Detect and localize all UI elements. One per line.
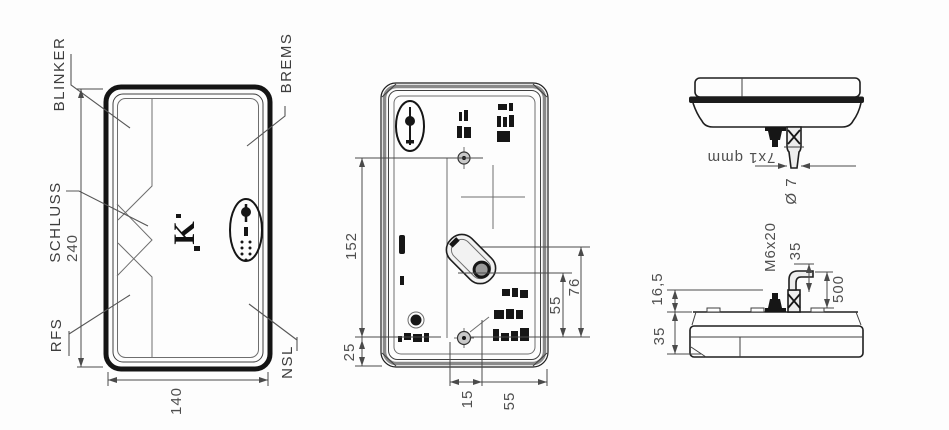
- cable-gland: [441, 229, 502, 290]
- blinker-label: BLINKER: [51, 37, 68, 112]
- top-cable: [784, 127, 804, 168]
- rear-connector-icon: [396, 101, 424, 151]
- rear-mark-dot: [400, 276, 404, 285]
- brand-logo-letter: K: [168, 221, 201, 245]
- technical-drawing-canvas: K: [0, 0, 949, 430]
- rear-corner-ticks: [382, 84, 547, 366]
- dim-140-label: 140: [168, 387, 185, 415]
- nsl-label: NSL: [279, 345, 296, 379]
- side-tab-1: [707, 308, 720, 312]
- dim-25-label: 25: [341, 343, 358, 362]
- top-mounting-stud: [765, 127, 786, 147]
- dim-152-label: 152: [343, 232, 360, 260]
- cable-dia-label: Ø 7: [783, 177, 800, 204]
- rear-screw-hole-bottom: [454, 317, 489, 348]
- top-seal-band: [689, 97, 864, 104]
- nsl-leader: [249, 304, 297, 351]
- top-housing: [693, 103, 861, 127]
- side-tab-3: [811, 308, 824, 312]
- rfs-label: RFS: [48, 318, 65, 353]
- front-dim-height: [77, 89, 103, 367]
- side-view: M6x20 35 500 16,5 35: [649, 222, 863, 357]
- dim-240-label: 240: [64, 234, 81, 262]
- schluss-label: SCHLUSS: [47, 181, 64, 262]
- approval-marking-stamps-top: [457, 103, 514, 142]
- dim-76-label: 76: [566, 278, 583, 297]
- housing-depth-label: 35: [651, 327, 668, 346]
- dim-55-right-label: 55: [547, 296, 564, 315]
- stud-height-label: 16,5: [649, 272, 666, 305]
- side-housing-taper: [692, 312, 861, 325]
- cable-section-label: 7x1 qmm: [707, 149, 776, 166]
- front-connector-icon: [230, 199, 262, 262]
- top-view: 7x1 qmm Ø 7: [689, 78, 864, 205]
- brems-leader: [247, 106, 285, 146]
- blinker-leader: [71, 54, 130, 128]
- cable-length-label: 500: [830, 275, 847, 303]
- front-lens-chevron: [117, 204, 152, 276]
- front-dim-width: [108, 372, 268, 386]
- rear-view: 152 25 15 55 55 76: [341, 83, 590, 410]
- approval-marking-stamps-bottom: [493, 288, 529, 341]
- front-lens-divider: [118, 99, 152, 357]
- side-tab-2: [751, 308, 764, 312]
- dim-15-label: 15: [459, 390, 476, 409]
- rear-mark-dash: [399, 235, 405, 254]
- front-view: K: [47, 33, 297, 415]
- brand-logo-mark: K: [168, 214, 201, 251]
- top-lens: [695, 78, 860, 97]
- cable-stub-label: 35: [787, 242, 804, 261]
- side-mounting-stud: [765, 293, 786, 312]
- side-dim-left: [667, 290, 763, 354]
- rear-crosshair: [461, 165, 525, 229]
- side-lens-body: [690, 326, 863, 357]
- rear-outer-border: [381, 83, 548, 367]
- dim-55-bottom-label: 55: [501, 392, 518, 411]
- side-lens-dividers: [690, 337, 863, 357]
- tail-lamp-drawing: K: [0, 0, 949, 430]
- brems-label: BREMS: [278, 33, 295, 94]
- rfs-leader: [69, 295, 130, 356]
- stud-spec-label: M6x20: [762, 222, 779, 272]
